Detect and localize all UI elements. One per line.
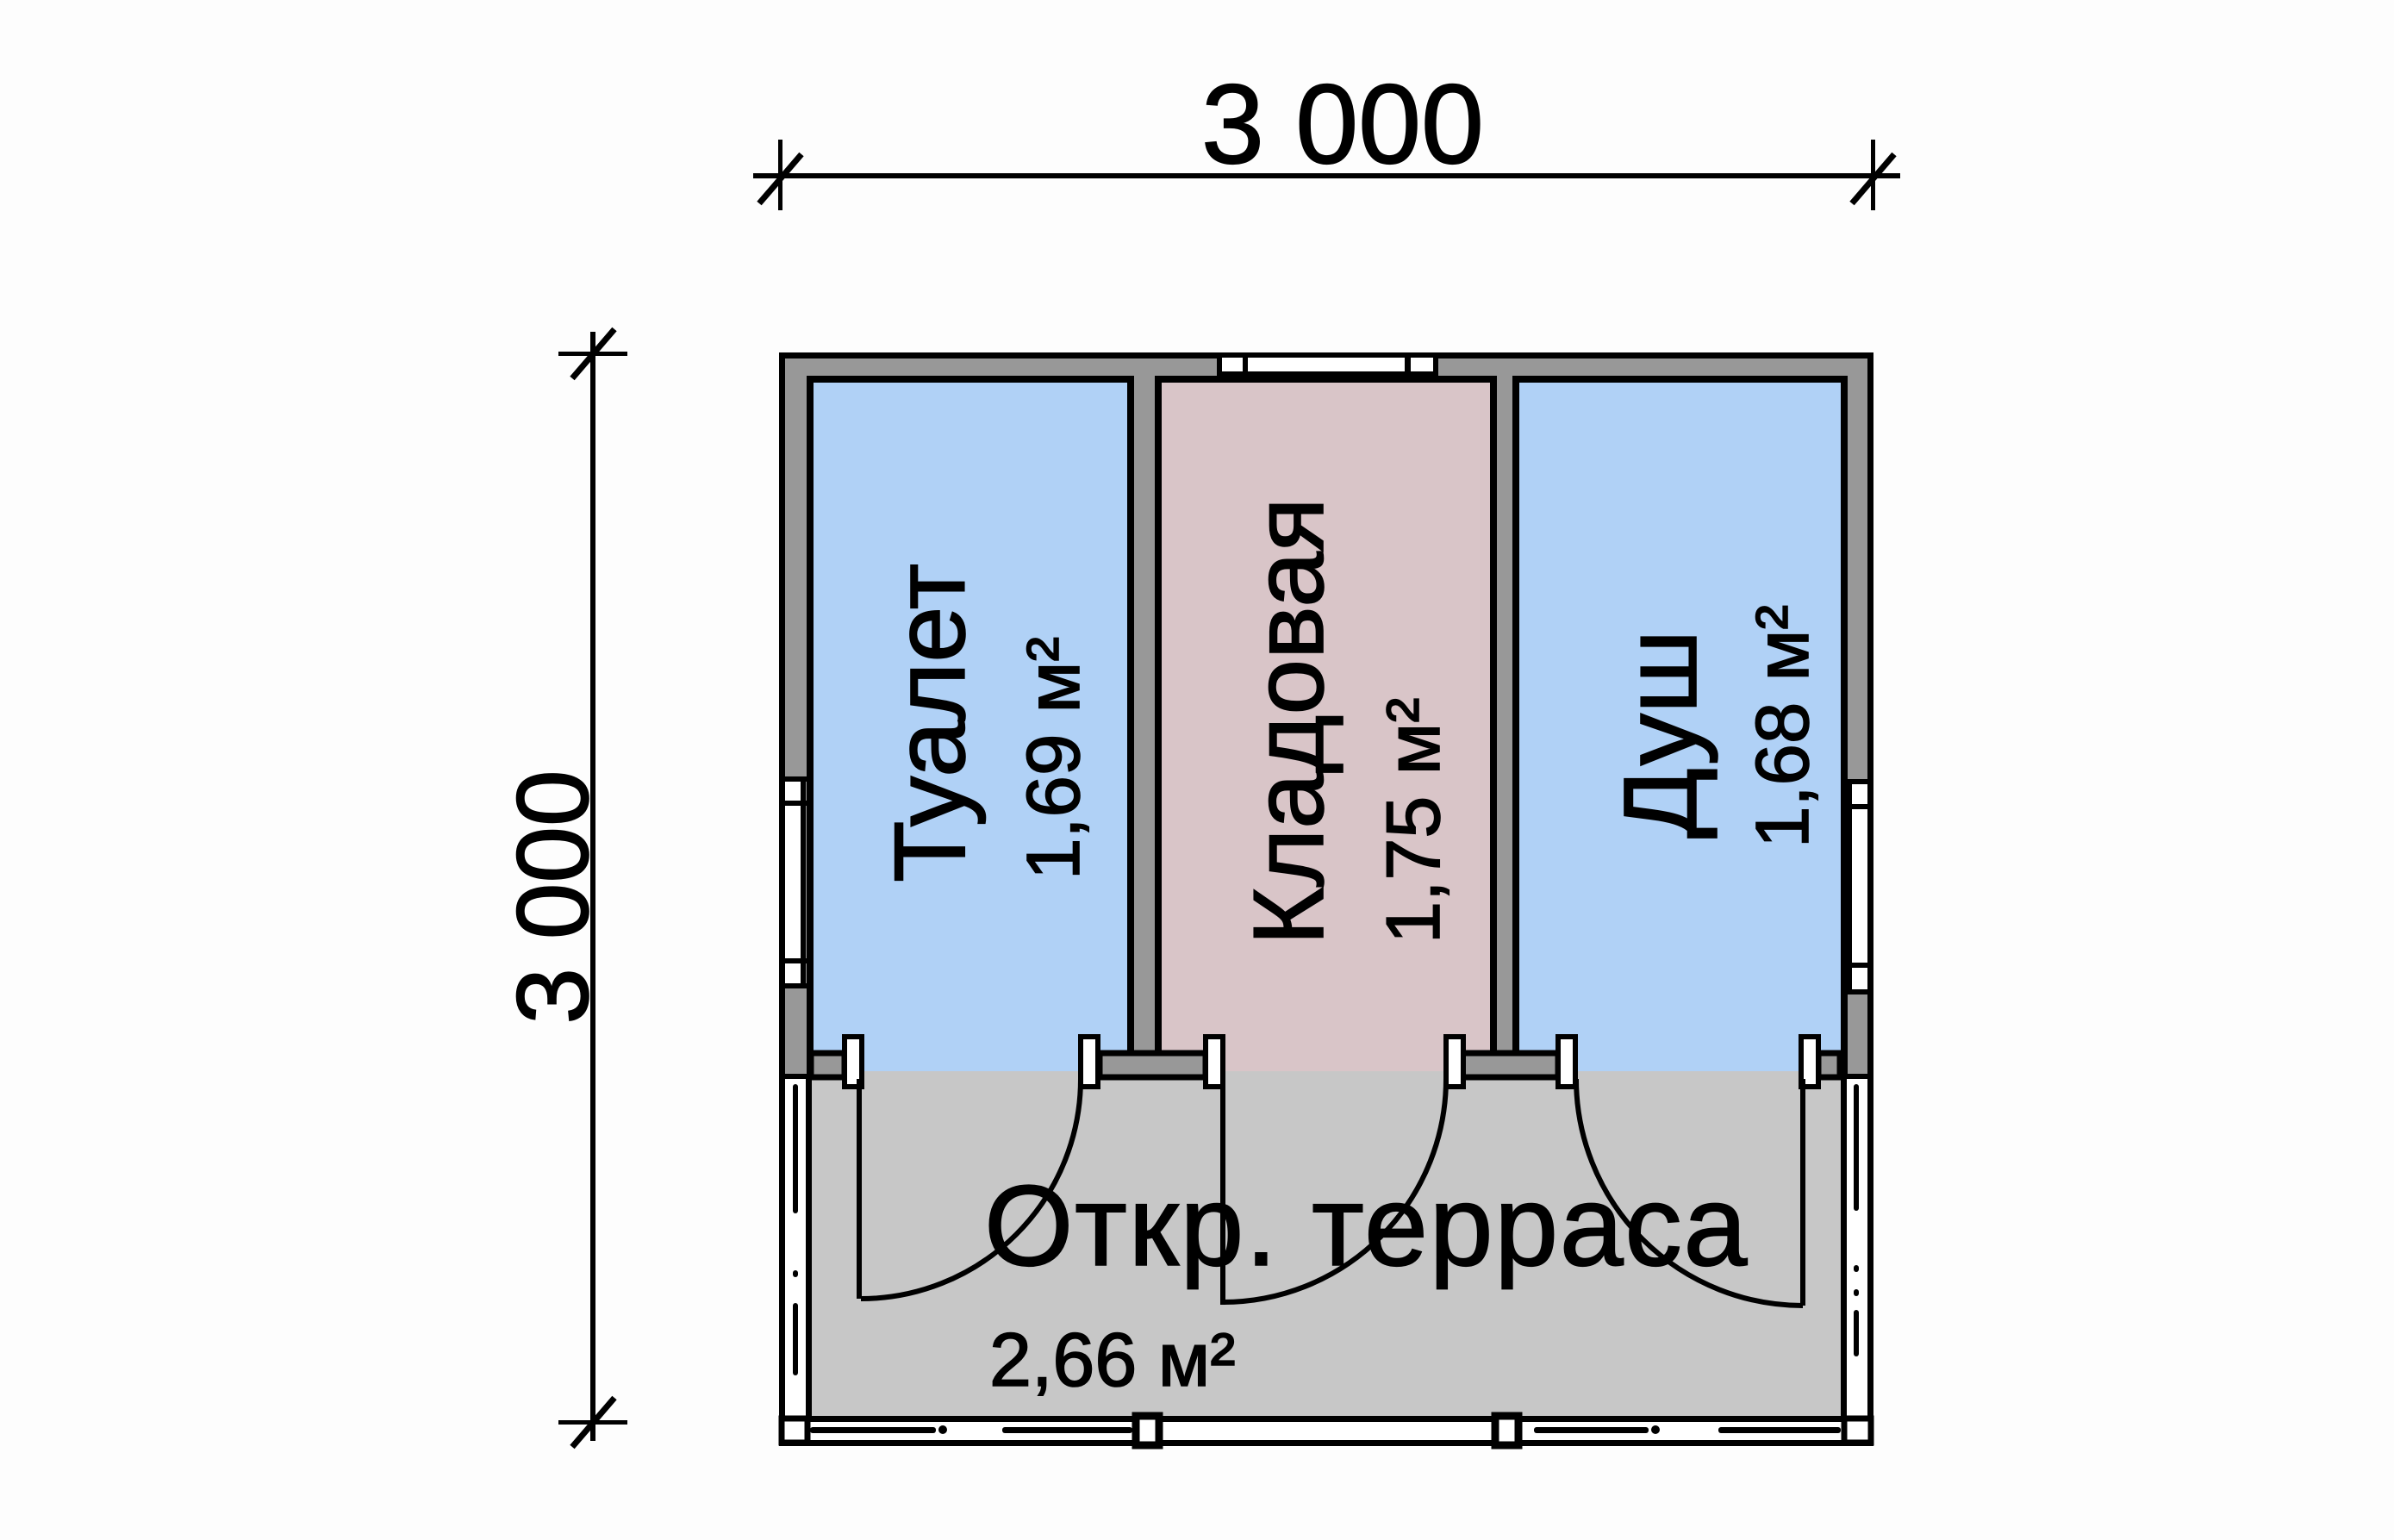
svg-text:1,69 м²: 1,69 м²: [1012, 637, 1095, 880]
svg-text:2,66 м²: 2,66 м²: [989, 1317, 1236, 1402]
svg-text:Душ: Душ: [1601, 630, 1718, 839]
svg-text:3 000: 3 000: [496, 770, 610, 1024]
svg-text:Кладовая: Кладовая: [1232, 497, 1344, 945]
svg-text:Туалет: Туалет: [873, 564, 986, 882]
svg-text:3 000: 3 000: [1201, 60, 1484, 187]
svg-text:1,75 м²: 1,75 м²: [1370, 697, 1456, 944]
svg-text:Откр. терраса: Откр. терраса: [984, 1163, 1749, 1290]
svg-text:1,68 м²: 1,68 м²: [1741, 605, 1824, 848]
